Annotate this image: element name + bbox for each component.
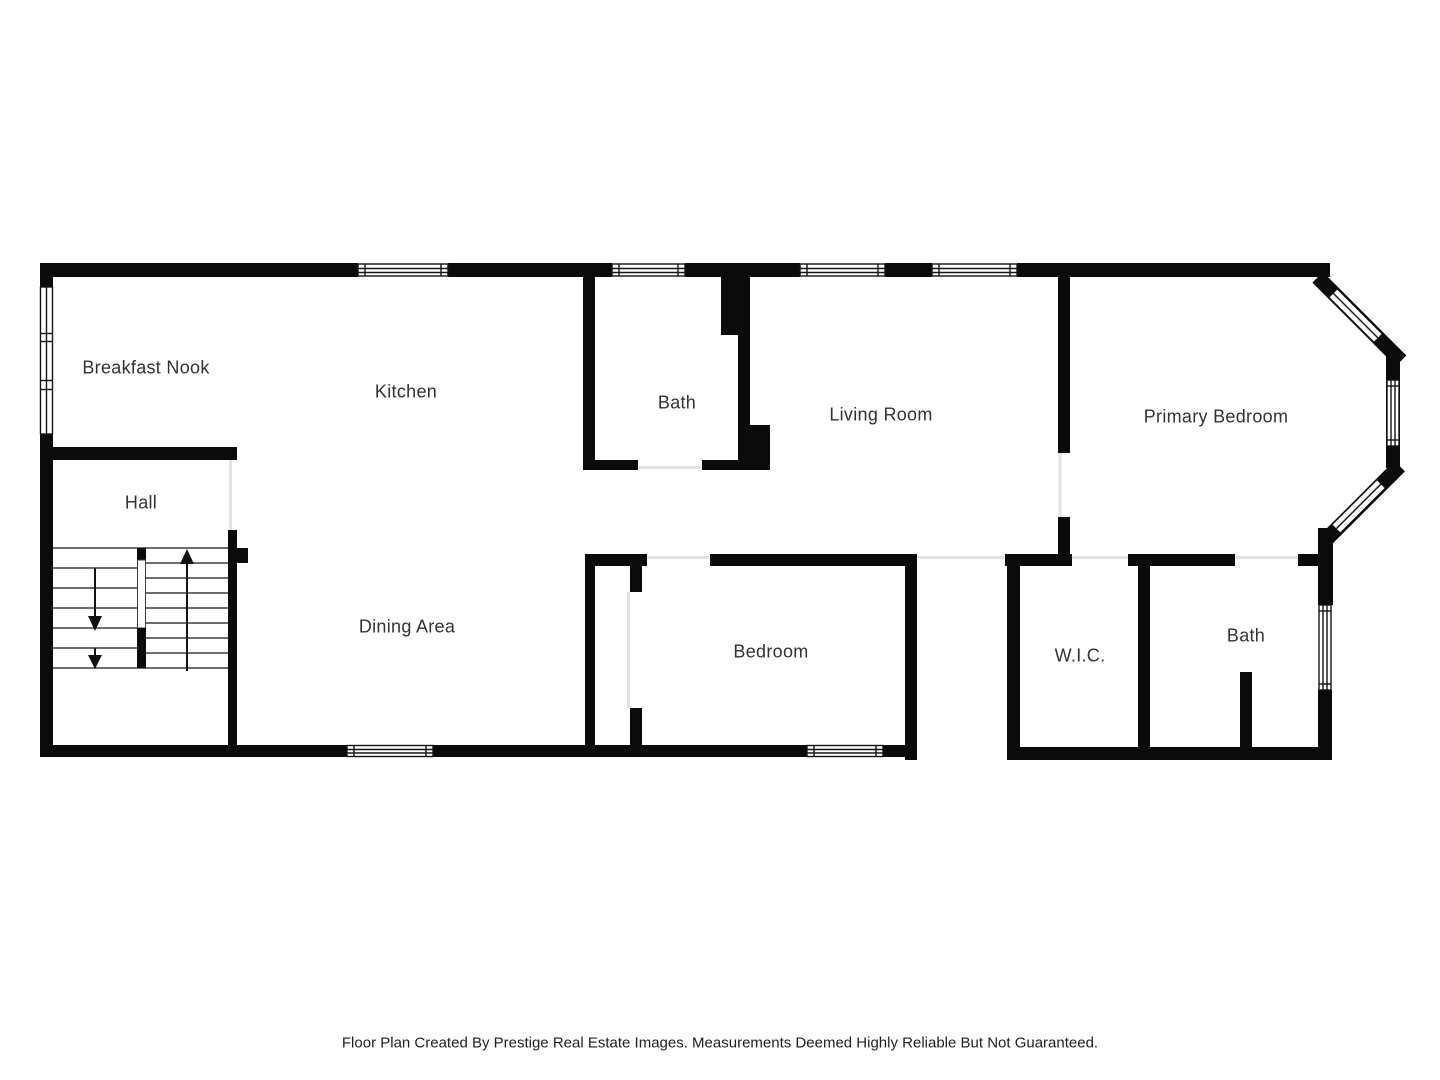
- window-symbol: [800, 264, 885, 276]
- room-label-living-room: Living Room: [829, 405, 932, 426]
- door-openings: [229, 453, 1298, 708]
- wall: [237, 548, 248, 563]
- wall: [685, 263, 800, 277]
- door-opening: [638, 466, 702, 469]
- window-symbol: [1332, 480, 1386, 534]
- wall: [40, 745, 347, 757]
- windows: [41, 264, 1400, 757]
- room-label-dining-area: Dining Area: [359, 617, 455, 638]
- room-label-primary-bedroom: Primary Bedroom: [1144, 407, 1289, 428]
- door-opening: [918, 556, 1005, 559]
- door-opening: [1235, 556, 1298, 559]
- door-opening: [229, 460, 232, 530]
- wall: [583, 460, 638, 470]
- door-opening: [1072, 556, 1128, 559]
- floor-plan-page: Breakfast Nook Kitchen Bath Living Room …: [0, 0, 1440, 1080]
- room-label-breakfast-nook: Breakfast Nook: [82, 358, 209, 379]
- wall: [702, 460, 770, 470]
- wall: [583, 277, 595, 470]
- wall: [40, 263, 53, 289]
- wall: [1007, 747, 1332, 760]
- wall: [1240, 672, 1252, 747]
- wall: [1128, 554, 1235, 566]
- door-opening: [647, 556, 710, 559]
- wall: [40, 263, 358, 277]
- window-symbol: [358, 264, 448, 276]
- room-label-bedroom: Bedroom: [733, 642, 808, 663]
- window-symbol: [807, 746, 883, 757]
- stair-divider: [137, 548, 146, 668]
- wall: [1058, 277, 1070, 453]
- door-opening: [627, 592, 630, 708]
- wall: [738, 425, 770, 460]
- wall: [905, 554, 917, 760]
- wall: [1138, 566, 1150, 747]
- floor-plan-drawing: [0, 0, 1440, 1080]
- stairs-down-arrow-icon: [88, 568, 102, 631]
- wall: [40, 433, 53, 757]
- room-label-hall: Hall: [125, 493, 157, 514]
- window-symbol: [1329, 289, 1383, 343]
- window-symbol: [932, 264, 1017, 276]
- window-symbol: [1319, 605, 1331, 690]
- wall: [228, 530, 237, 757]
- wall: [630, 708, 642, 757]
- wall: [1058, 517, 1070, 566]
- wall: [710, 554, 917, 566]
- wall: [585, 554, 595, 757]
- wall: [448, 263, 612, 277]
- wall: [721, 277, 750, 335]
- window-symbol: [41, 287, 53, 434]
- wall: [1318, 690, 1332, 760]
- room-label-wic: W.I.C.: [1055, 646, 1106, 667]
- footer-disclaimer: Floor Plan Created By Prestige Real Esta…: [342, 1035, 1098, 1052]
- wall: [1017, 263, 1330, 277]
- window-symbol: [347, 746, 433, 757]
- wall: [1007, 554, 1020, 760]
- door-opening: [1059, 453, 1062, 517]
- exterior-walls: [40, 263, 1406, 760]
- room-label-bath-upper: Bath: [658, 393, 696, 414]
- wall: [40, 447, 237, 460]
- wall: [433, 745, 807, 757]
- window-symbol: [1387, 380, 1399, 446]
- room-label-kitchen: Kitchen: [375, 382, 437, 403]
- room-label-bath-lower: Bath: [1227, 626, 1265, 647]
- wall: [738, 335, 750, 427]
- staircase: [53, 548, 228, 671]
- wall: [1298, 554, 1318, 566]
- wall: [630, 554, 642, 592]
- window-symbol: [612, 264, 685, 276]
- wall: [885, 263, 932, 277]
- stairs-down-arrow-icon: [88, 648, 102, 669]
